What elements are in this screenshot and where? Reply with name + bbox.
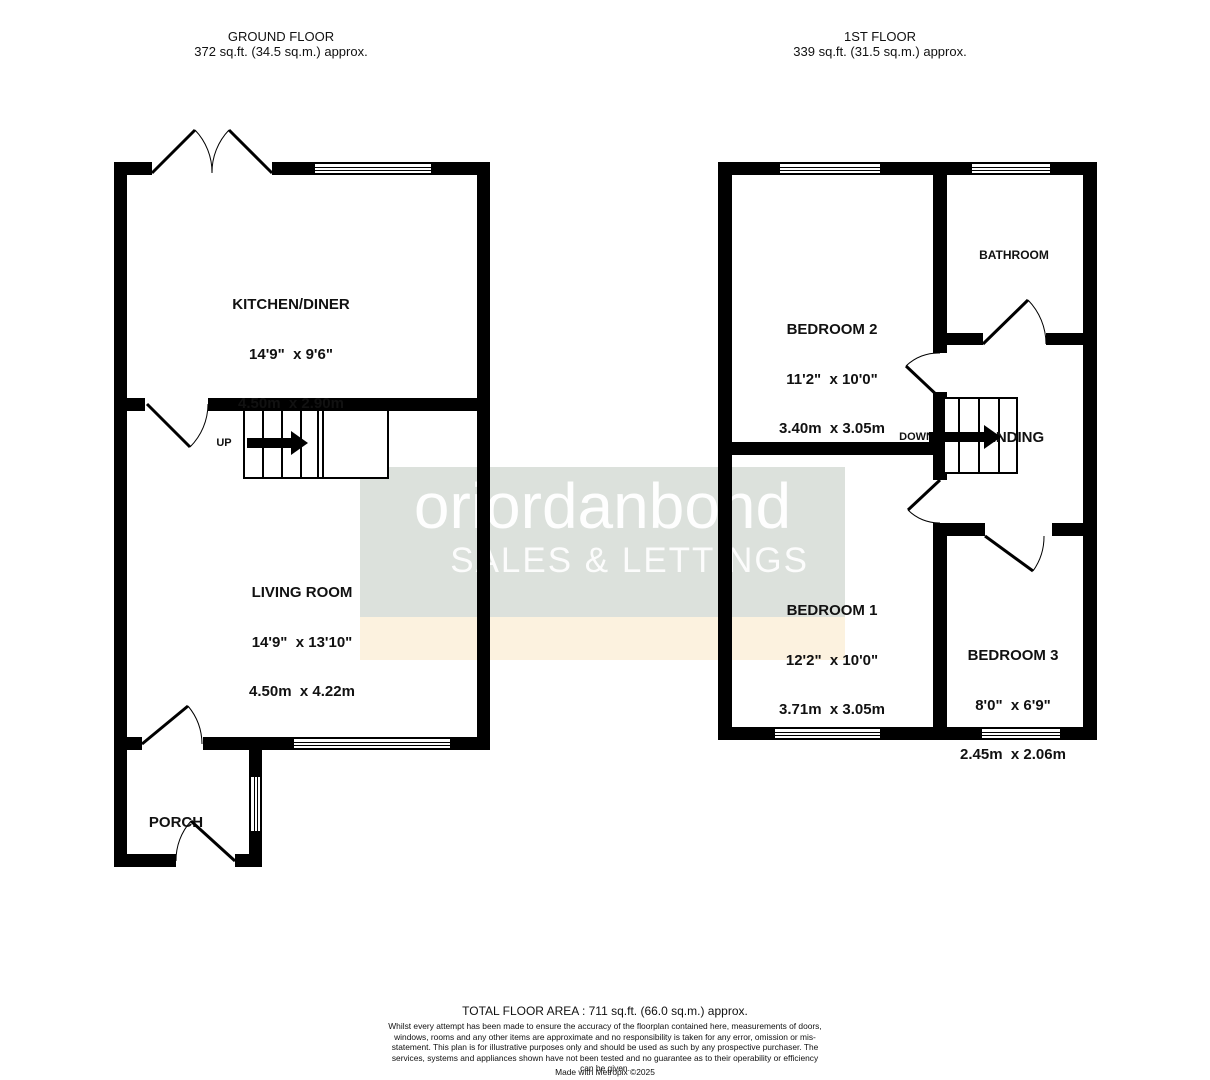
porch-label: PORCH (116, 782, 236, 865)
porch-wall-bottom-b (235, 854, 262, 867)
watermark-brand: oriordanbond (360, 474, 845, 538)
total-floor-area: TOTAL FLOOR AREA : 711 sq.ft. (66.0 sq.m… (0, 1004, 1210, 1018)
landing-label: LANDING (950, 429, 1070, 446)
bedroom3-wall-b (1052, 523, 1083, 536)
room-dims-metric: 4.50m x 4.22m (192, 684, 412, 701)
gf-wall-top-a (272, 162, 313, 175)
floorplan-canvas: GROUND FLOOR 372 sq.ft. (34.5 sq.m.) app… (0, 0, 1210, 1080)
first-floor-title: 1ST FLOOR (680, 29, 1080, 44)
room-dims-imperial: 8'0" x 6'9" (903, 698, 1123, 715)
porch-window (249, 775, 262, 833)
porch-inner-door-leaf (142, 706, 188, 744)
bedroom3-door-arc (1033, 536, 1044, 571)
room-dims-metric: 3.40m x 3.05m (722, 421, 942, 438)
bathroom-wall-b (1046, 333, 1083, 345)
gf-wall-left (114, 162, 127, 867)
bathroom-door-arc (1028, 300, 1046, 344)
french-door-left-leaf (152, 130, 195, 173)
room-name: BEDROOM 2 (722, 322, 942, 339)
french-door-left-arc (195, 130, 212, 173)
bathroom-label: BATHROOM (954, 248, 1074, 262)
room-dims-imperial: 14'9" x 9'6" (181, 347, 401, 364)
gf-bottom-stub (127, 737, 142, 750)
bathroom-window (970, 162, 1052, 175)
french-door-right-arc (212, 130, 229, 173)
ground-floor-header: GROUND FLOOR 372 sq.ft. (34.5 sq.m.) app… (81, 29, 481, 59)
bedroom1-door-arc (908, 510, 940, 523)
porch-wall-right-a (249, 750, 262, 775)
bedroom2-window (778, 162, 882, 175)
bedroom3-wall-a (947, 523, 985, 536)
room-name: LIVING ROOM (192, 585, 412, 602)
french-door-right-leaf (229, 130, 272, 173)
bedroom3-label: BEDROOM 3 8'0" x 6'9" 2.45m x 2.06m (903, 615, 1123, 797)
ground-floor-area: 372 sq.ft. (34.5 sq.m.) approx. (81, 44, 481, 59)
room-dims-imperial: 11'2" x 10'0" (722, 372, 942, 389)
living-room-label: LIVING ROOM 14'9" x 13'10" 4.50m x 4.22m (192, 552, 412, 734)
kitchen-diner-label: KITCHEN/DINER 14'9" x 9'6" 4.50m x 2.90m (181, 264, 401, 446)
room-name: KITCHEN/DINER (181, 297, 401, 314)
room-dims-metric: 2.45m x 2.06m (903, 747, 1123, 764)
gf-bottom-right (452, 737, 490, 750)
ground-floor-title: GROUND FLOOR (81, 29, 481, 44)
gf-divider-wall-a (114, 398, 145, 411)
ff-wall-top-b (882, 162, 970, 175)
gf-living-window (292, 737, 452, 750)
gf-kitchen-window (313, 162, 433, 175)
gf-wall-top-stub (114, 162, 152, 175)
room-name: PORCH (116, 815, 236, 832)
bathroom-door-leaf (983, 300, 1028, 344)
bedroom3-door-leaf (985, 536, 1033, 571)
room-dims-metric: 4.50m x 2.90m (181, 396, 401, 413)
bedroom1-door-leaf (908, 480, 940, 510)
gf-wall-right (477, 162, 490, 750)
room-name: BEDROOM 3 (903, 648, 1123, 665)
bathroom-wall-a (947, 333, 983, 345)
ff-wall-top-a (718, 162, 778, 175)
first-floor-area: 339 sq.ft. (31.5 sq.m.) approx. (680, 44, 1080, 59)
gf-bottom-mid (203, 737, 292, 750)
bedroom2-label: BEDROOM 2 11'2" x 10'0" 3.40m x 3.05m (722, 289, 942, 471)
metropix-credit: Made with Metropix ©2025 (0, 1067, 1210, 1077)
first-floor-header: 1ST FLOOR 339 sq.ft. (31.5 sq.m.) approx… (680, 29, 1080, 59)
room-dims-imperial: 14'9" x 13'10" (192, 635, 412, 652)
